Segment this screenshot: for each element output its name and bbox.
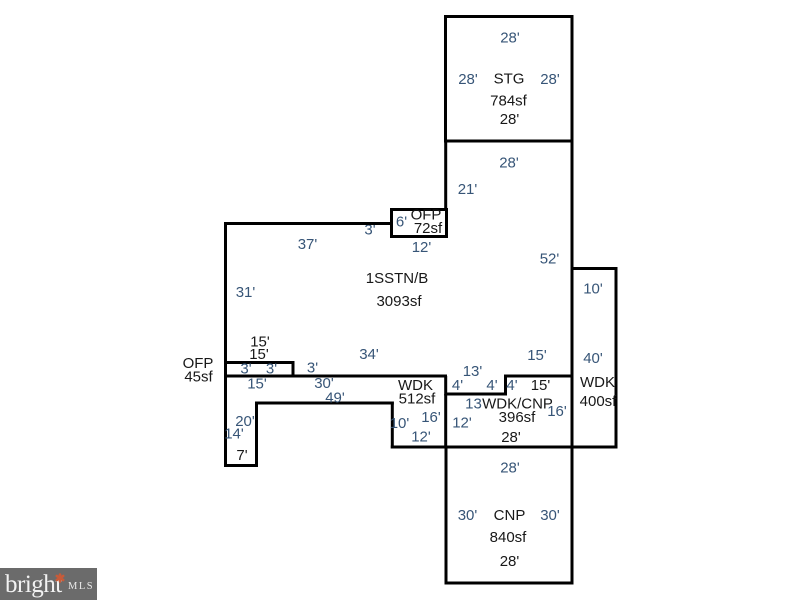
svg-text:4': 4': [486, 377, 497, 394]
svg-text:12': 12': [412, 239, 432, 256]
svg-text:512sf: 512sf: [399, 391, 437, 408]
svg-text:10': 10': [583, 281, 603, 298]
svg-text:4': 4': [452, 377, 463, 394]
svg-text:28': 28': [500, 30, 520, 47]
svg-text:16': 16': [547, 403, 567, 420]
svg-text:784sf: 784sf: [490, 93, 528, 110]
svg-text:4': 4': [506, 377, 517, 394]
svg-text:16': 16': [421, 409, 441, 426]
svg-text:28': 28': [540, 71, 560, 88]
svg-text:40': 40': [583, 350, 603, 367]
svg-text:10': 10': [390, 415, 410, 432]
svg-text:34': 34': [359, 346, 379, 363]
svg-text:1SSTN/B: 1SSTN/B: [366, 270, 429, 287]
svg-text:6': 6': [396, 214, 407, 231]
svg-text:37': 37': [298, 236, 318, 253]
svg-text:12': 12': [411, 429, 431, 446]
svg-text:3093sf: 3093sf: [376, 293, 422, 310]
svg-text:45sf: 45sf: [184, 369, 213, 386]
svg-text:28': 28': [500, 553, 520, 570]
svg-text:bright: bright: [5, 571, 62, 598]
svg-text:21': 21': [458, 181, 478, 198]
svg-text:28': 28': [499, 155, 519, 172]
svg-text:15': 15': [531, 377, 551, 394]
svg-text:31': 31': [236, 284, 256, 301]
svg-text:3': 3': [307, 360, 318, 377]
svg-text:28': 28': [500, 460, 520, 477]
svg-text:30': 30': [458, 507, 478, 524]
svg-text:72sf: 72sf: [414, 220, 443, 237]
svg-text:CNP: CNP: [494, 507, 526, 524]
svg-text:15': 15': [527, 347, 547, 364]
svg-text:14': 14': [224, 426, 244, 443]
svg-text:STG: STG: [494, 71, 525, 88]
svg-text:3': 3': [266, 361, 277, 378]
svg-text:52': 52': [540, 251, 560, 268]
svg-text:840sf: 840sf: [490, 529, 528, 546]
svg-text:28': 28': [500, 111, 520, 128]
svg-text:13: 13: [465, 396, 482, 413]
svg-text:12': 12': [452, 415, 472, 432]
svg-text:7': 7': [236, 447, 247, 464]
svg-text:396sf: 396sf: [499, 409, 537, 426]
svg-text:13': 13': [463, 363, 483, 380]
svg-text:3': 3': [240, 361, 251, 378]
svg-text:400sf: 400sf: [580, 393, 618, 410]
svg-text:28': 28': [501, 429, 521, 446]
svg-text:28': 28': [458, 71, 478, 88]
svg-text:30': 30': [540, 507, 560, 524]
svg-text:15': 15': [247, 376, 267, 393]
svg-text:49': 49': [325, 390, 345, 407]
svg-text:MLS: MLS: [68, 581, 94, 592]
svg-text:WDK: WDK: [580, 374, 615, 391]
